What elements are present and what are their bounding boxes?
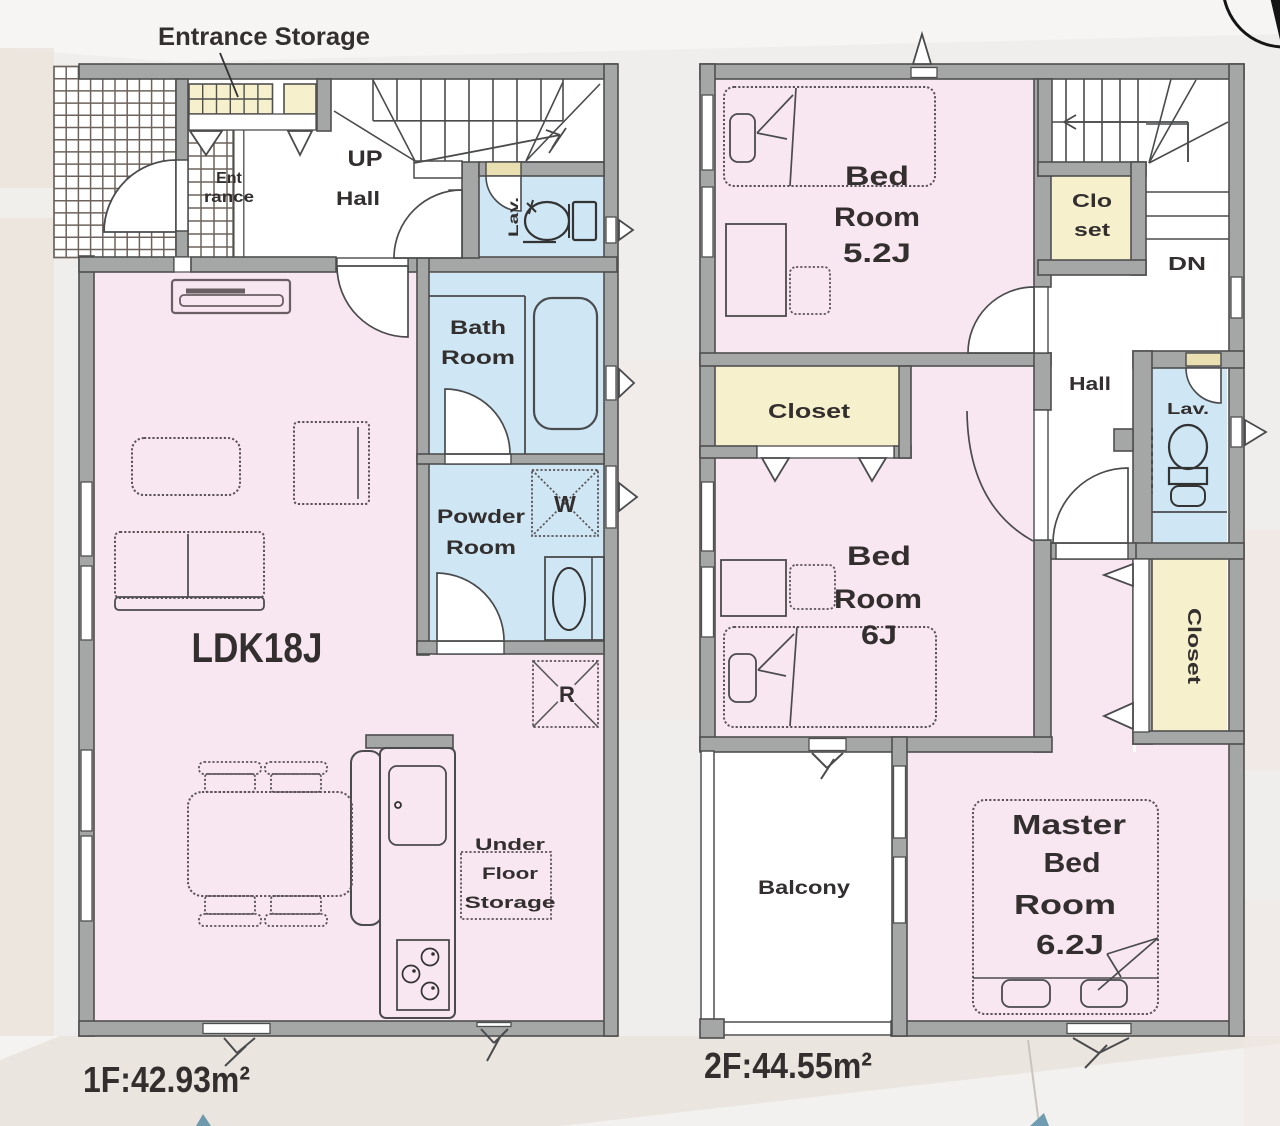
svg-text:Room: Room — [1014, 889, 1116, 920]
svg-text:Bed: Bed — [1044, 847, 1101, 878]
svg-text:Entrance Storage: Entrance Storage — [158, 23, 370, 51]
svg-text:2F:44.55m²: 2F:44.55m² — [704, 1045, 872, 1086]
svg-text:Master: Master — [1012, 809, 1126, 840]
svg-text:Floor: Floor — [482, 864, 538, 883]
svg-text:R: R — [559, 682, 575, 707]
svg-text:Lav.: Lav. — [505, 197, 521, 237]
svg-text:set: set — [1074, 220, 1110, 240]
svg-text:Under: Under — [475, 835, 546, 854]
svg-text:Powder: Powder — [437, 507, 526, 528]
svg-text:Clo: Clo — [1072, 191, 1112, 211]
svg-text:W: W — [554, 491, 576, 517]
svg-text:Lav.: Lav. — [1167, 401, 1209, 418]
svg-text:Room: Room — [834, 584, 922, 614]
svg-text:Room: Room — [834, 202, 920, 232]
svg-text:Closet: Closet — [768, 401, 850, 423]
svg-text:DN: DN — [1168, 254, 1206, 274]
svg-text:5.2J: 5.2J — [843, 238, 911, 268]
svg-text:Balcony: Balcony — [758, 878, 851, 899]
svg-text:Closet: Closet — [1184, 608, 1204, 684]
svg-text:LDK18J: LDK18J — [192, 624, 323, 671]
svg-text:rance: rance — [204, 189, 254, 206]
svg-text:Room: Room — [446, 538, 516, 559]
svg-text:Bed: Bed — [845, 161, 909, 191]
svg-text:Hall: Hall — [1069, 374, 1111, 394]
svg-text:Ent: Ent — [216, 170, 242, 187]
svg-text:Bed: Bed — [847, 541, 911, 571]
svg-text:Storage: Storage — [465, 893, 556, 912]
svg-text:6.2J: 6.2J — [1036, 929, 1104, 960]
svg-text:UP: UP — [348, 146, 383, 171]
svg-text:1F:42.93m²: 1F:42.93m² — [83, 1059, 250, 1100]
svg-text:Room: Room — [441, 348, 515, 369]
svg-text:Hall: Hall — [336, 189, 380, 210]
svg-text:6J: 6J — [861, 620, 897, 650]
svg-text:Bath: Bath — [450, 318, 506, 339]
